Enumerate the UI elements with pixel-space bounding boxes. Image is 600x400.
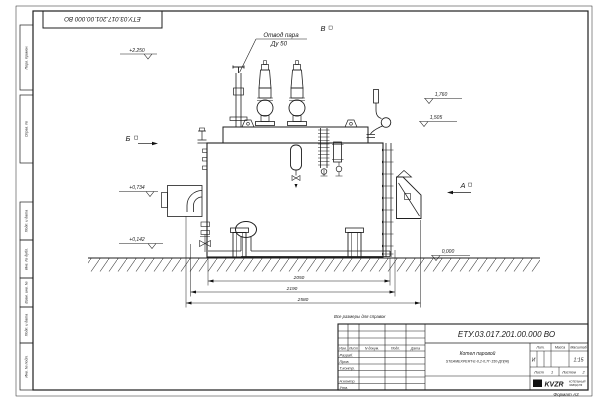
tb-header-podp: Подп. <box>391 346 400 350</box>
ground-hatch <box>88 259 540 272</box>
margin-vzam-inv: Взам. инв. № <box>25 281 29 303</box>
callout-text-1: Отвод пара <box>263 32 299 39</box>
view-v-label: В <box>320 24 325 33</box>
elevation-2250: +2.250 <box>129 48 145 54</box>
tb-row-prov: Пров. <box>340 360 350 364</box>
view-b-label: Б <box>126 134 131 143</box>
tb-row-utv: Утв. <box>340 386 349 390</box>
tb-header-izm: Изм. <box>339 346 346 350</box>
paper <box>0 0 600 400</box>
tb-scale-value: 1:15 <box>573 358 583 364</box>
reference-note: Все размеры для справок <box>334 314 386 319</box>
tb-row-razrab: Разраб. <box>340 353 354 357</box>
margin-podp-data-1: Подп. и дата <box>25 210 29 233</box>
tb-doc-name-2: STEAMEXPERT-Е-0,2-0,7Г-150-ДП(Ж) <box>446 360 510 364</box>
kvzr-logo-text: KVZR <box>545 381 564 388</box>
dimension-2580: 2580 <box>297 297 309 303</box>
elevation-1505: 1,505 <box>430 115 443 121</box>
callout-text-2: Ду 50 <box>270 41 288 48</box>
margin-podp-data-2: Подп. и дата <box>25 314 29 337</box>
dimension-2050: 2050 <box>293 275 305 281</box>
margin-perv-primen: Перв. примен. <box>25 46 29 70</box>
tb-designation: ЕТУ.03.017.201.00.000 ВО <box>458 330 555 339</box>
elevation-0000: 0,000 <box>442 249 455 255</box>
elevation-0142: +0,142 <box>129 237 145 243</box>
tb-row-nkontr: Н.контр. <box>340 379 356 383</box>
elevation-0734: +0,734 <box>129 185 145 191</box>
tb-row-tkontr: Т.контр. <box>340 366 355 370</box>
format-note: Формат А3 <box>553 392 579 397</box>
dimension-2190: 2190 <box>286 286 298 292</box>
kvzr-logo-sub2: ЗАВОД РФ <box>569 383 582 387</box>
tb-lit-header: Лит. <box>535 346 544 350</box>
drawing-sheet: Перв. примен. Справ. № Подп. и дата Инв.… <box>0 0 600 400</box>
margin-inv-dubl: Инв. № дубл. <box>25 248 29 270</box>
tb-mass-header: Масса <box>555 346 565 350</box>
kvzr-logo-sub1: КОТЕЛЬНЫЙ <box>569 379 585 383</box>
tb-lit-value: И <box>532 358 536 364</box>
tb-sheets-label: Листов <box>561 370 576 374</box>
stamp-designation: ЕТУ.03.017.201.00.000 ВО <box>64 15 141 22</box>
tb-header-docnum: N докум. <box>365 346 379 350</box>
margin-inv-podl: Инв. № подл. <box>25 355 29 377</box>
tb-doc-name-1: Котел паровой <box>460 350 496 357</box>
tb-header-data: Дата <box>410 346 420 350</box>
margin-sprav-no: Справ. № <box>25 121 29 137</box>
tb-sheet-label: Лист <box>533 370 544 374</box>
tb-scale-header: Масштаб <box>570 346 587 350</box>
tb-sheet-value: 1 <box>551 370 553 374</box>
elevation-1760: 1,760 <box>435 92 448 98</box>
drawing-svg: Перв. примен. Справ. № Подп. и дата Инв.… <box>0 0 600 400</box>
view-a-label: А <box>459 181 465 190</box>
tb-header-list: Лист <box>348 346 358 350</box>
